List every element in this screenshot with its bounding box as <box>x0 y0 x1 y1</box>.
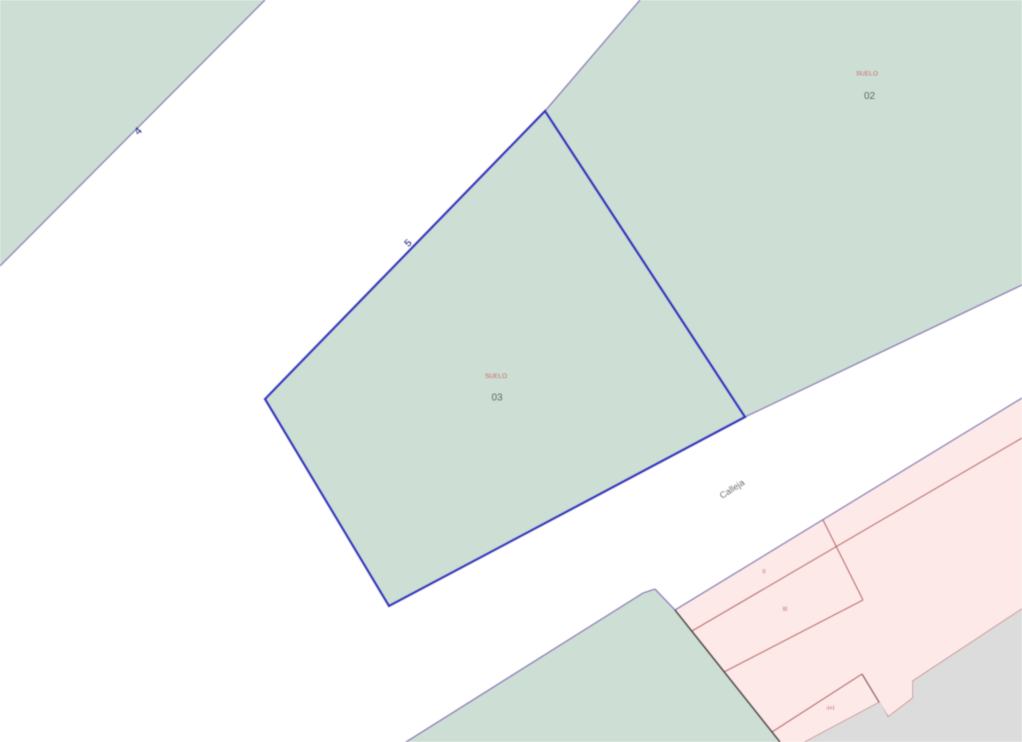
svg-text:02: 02 <box>864 91 876 102</box>
svg-text:III: III <box>782 607 787 613</box>
svg-text:II: II <box>762 570 766 576</box>
svg-text:-I+I: -I+I <box>826 706 835 712</box>
svg-text:SUELO: SUELO <box>856 71 878 78</box>
svg-text:SUELO: SUELO <box>485 373 507 380</box>
svg-text:03: 03 <box>491 393 503 404</box>
